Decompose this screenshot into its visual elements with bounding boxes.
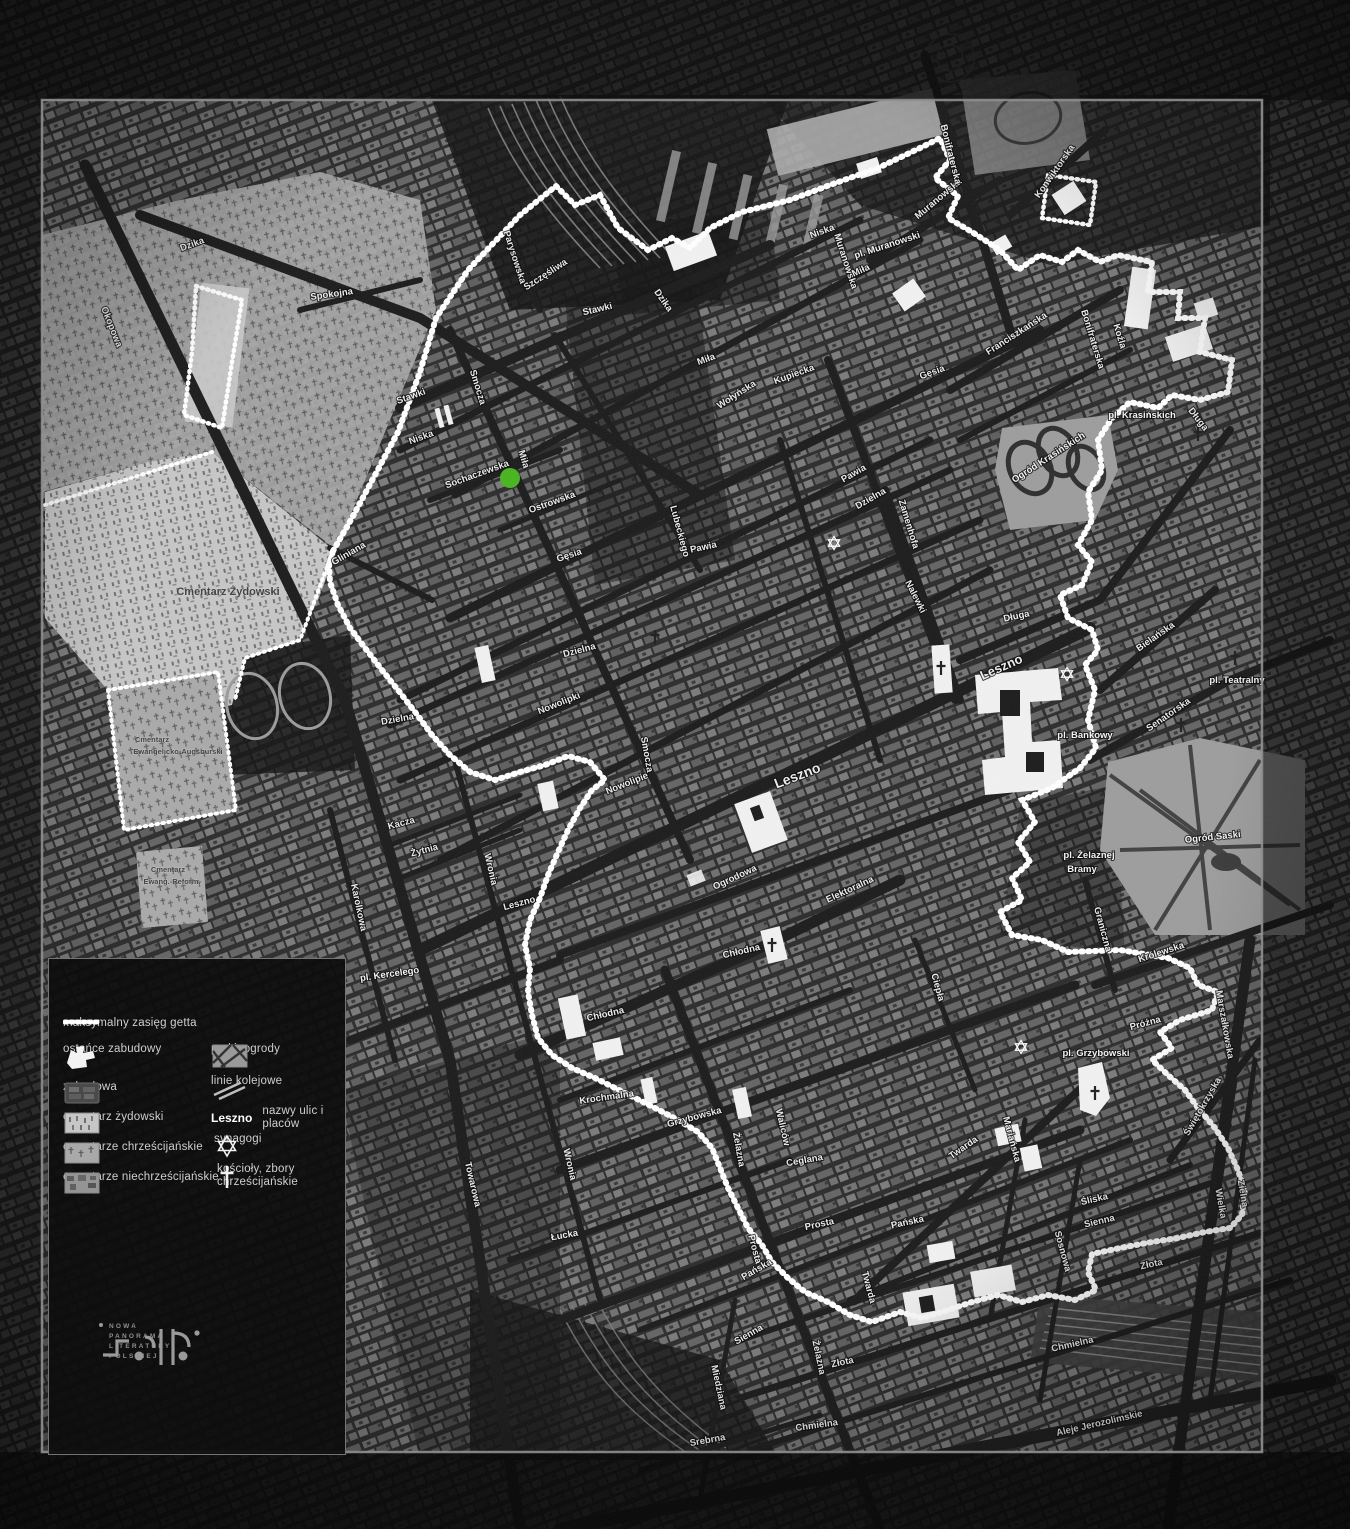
legend-item-ghetto-extent: maksymalny zasięg getta: [63, 1017, 197, 1030]
legend-item-synagogues: synagogi: [214, 1133, 262, 1146]
remnant-shape-icon: [63, 1043, 101, 1073]
legend-item-builtup: zabudowa: [63, 1081, 117, 1094]
legend-item-nonchristian-cemeteries: cmentarze niechrześcijańskie: [63, 1171, 219, 1184]
synagogue-star-icon: [214, 1133, 240, 1159]
legend-item-parks: parki, ogrody: [211, 1043, 280, 1056]
park-swatch-icon: [211, 1043, 249, 1069]
street-name-sample: Leszno: [211, 1111, 252, 1125]
npl-logo: NOWA PANORAMA LITERATURY POLSKIEJ: [99, 1323, 171, 1360]
legend-item-street-names: Leszno nazwy ulic i placów: [211, 1105, 345, 1131]
legend-label: nazwy ulic i placów: [262, 1105, 345, 1131]
map-legend: maksymalny zasięg getta ostańce zabudowy…: [48, 958, 346, 1455]
railway-swatch-icon: [211, 1075, 249, 1101]
built-up-swatch-icon: [63, 1081, 101, 1105]
legend-item-christian-cemeteries: cmentarze chrześcijańskie: [63, 1141, 203, 1154]
npl-logo-glyphs: [99, 1323, 207, 1369]
legend-item-churches: kościoły, zbory chrześcijańskie: [217, 1163, 327, 1189]
jewish-cemetery-swatch-icon: [63, 1111, 101, 1135]
legend-item-railways: linie kolejowe: [211, 1075, 282, 1088]
legend-item-jewish-cemetery: cmentarz żydowski: [63, 1111, 164, 1124]
christian-cemetery-swatch-icon: [63, 1141, 101, 1165]
non-christian-cemetery-swatch-icon: [63, 1171, 101, 1195]
ghetto-boundary-dash-icon: [63, 1017, 101, 1027]
church-cross-icon: [217, 1163, 237, 1191]
warsaw-ghetto-map-page: DzikaOkopowaSpokojnaParysowskaSzczęśliwa…: [0, 0, 1350, 1529]
legend-item-remnants: ostańce zabudowy: [63, 1043, 161, 1056]
